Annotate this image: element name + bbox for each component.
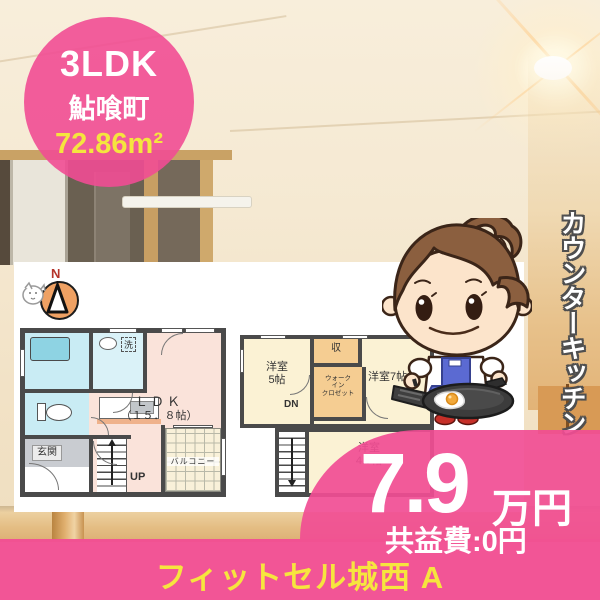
- closet-label: 収: [314, 343, 358, 355]
- mascot-character: [382, 218, 532, 428]
- dn-label: DN: [284, 399, 298, 411]
- toilet-room: [25, 393, 89, 435]
- ldk-door-arc: [161, 333, 183, 355]
- property-badge: 3LDK 鮎喰町 72.86m²: [24, 17, 194, 187]
- wic-line1: ウォーク: [314, 375, 362, 382]
- down-arrow-icon: [288, 480, 296, 487]
- bathroom: [25, 333, 89, 389]
- window-interior-2: [158, 160, 200, 265]
- ldk-size: （１５．８帖）: [113, 410, 205, 423]
- closet: 収: [314, 339, 358, 363]
- balcony-label: バルコニー: [167, 457, 219, 466]
- laundry-label: 洗: [121, 337, 136, 352]
- sink-icon: [99, 337, 117, 350]
- room5-name: 洋室: [248, 361, 306, 374]
- hand-left: [405, 374, 420, 389]
- bathtub-icon: [30, 337, 70, 361]
- listing-flyer: N 洗 玄関: [0, 0, 600, 600]
- fried-egg-icon: [435, 392, 465, 409]
- badge-floor-area: 72.86m²: [55, 128, 163, 161]
- window-frame-right: [200, 160, 213, 265]
- wic-line2: イン: [314, 382, 362, 389]
- up-label: UP: [130, 471, 145, 484]
- badge-area-name: 鮎喰町: [69, 87, 150, 126]
- entrance-label: 玄関: [32, 445, 62, 461]
- window-sash: [10, 160, 68, 265]
- curtain-rail: [122, 196, 252, 208]
- badge-layout-type: 3LDK: [60, 43, 158, 85]
- compass-north-label: N: [51, 266, 60, 281]
- eye-right: [466, 294, 483, 320]
- eye-left: [416, 295, 433, 321]
- property-name: フィットセル城西 A: [0, 552, 600, 597]
- washroom: 洗: [93, 333, 143, 389]
- wic-line3: クロゼット: [314, 390, 362, 397]
- price-amount: 7.9: [360, 441, 468, 525]
- wic-label: ウォーク イン クロゼット: [314, 375, 362, 397]
- walk-in-closet: ウォーク イン クロゼット: [314, 367, 362, 417]
- animal-doodle-icon: [20, 280, 46, 308]
- window-edge: [0, 160, 10, 265]
- toilet-icon: [46, 404, 72, 421]
- toilet-tank-icon: [37, 403, 46, 421]
- floorplan-1f: 洗 玄関 ＬＤＫ （１５．８帖） UP: [20, 328, 226, 497]
